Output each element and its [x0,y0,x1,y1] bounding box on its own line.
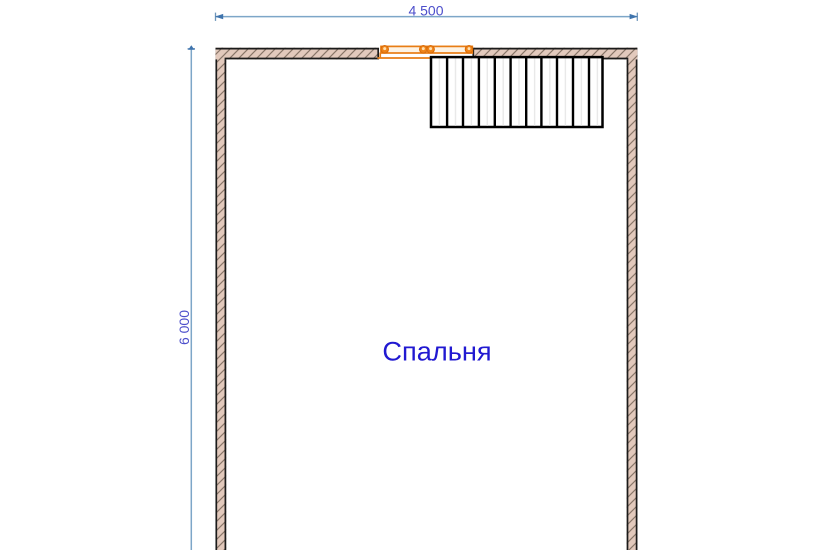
svg-text:4 500: 4 500 [408,3,443,19]
svg-text:Спальня: Спальня [382,336,491,367]
svg-text:6 000: 6 000 [176,310,192,345]
